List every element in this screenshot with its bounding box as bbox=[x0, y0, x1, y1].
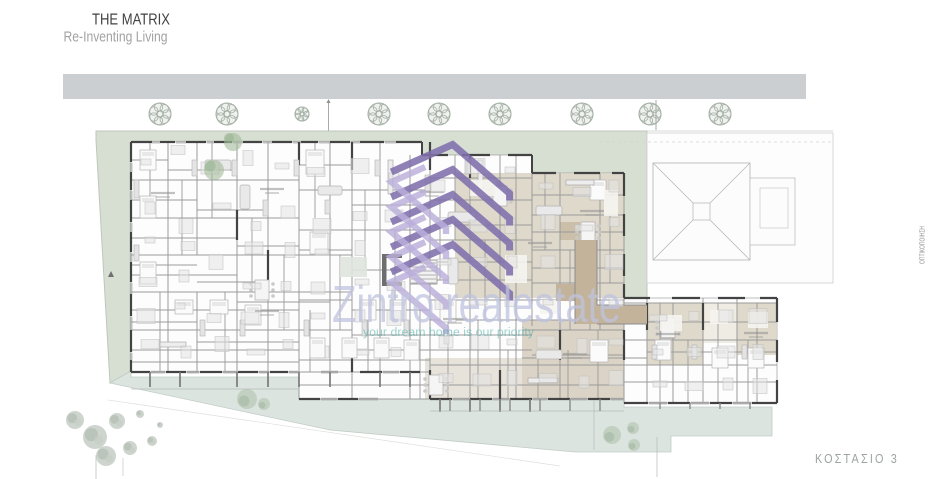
svg-text:Zintro realestate: Zintro realestate bbox=[332, 276, 621, 334]
svg-text:ΚΟΣΤΑΣΙΟ 3: ΚΟΣΤΑΣΙΟ 3 bbox=[815, 452, 899, 466]
svg-text:your dream home is our priorit: your dream home is our priority bbox=[363, 327, 534, 339]
svg-text:ΟΠΤΙΚΟΠΟΙΗΣΗ: ΟΠΤΙΚΟΠΟΙΗΣΗ bbox=[920, 226, 927, 264]
svg-text:THE MATRIX: THE MATRIX bbox=[92, 11, 170, 28]
svg-text:Re-Inventing Living: Re-Inventing Living bbox=[64, 29, 168, 45]
